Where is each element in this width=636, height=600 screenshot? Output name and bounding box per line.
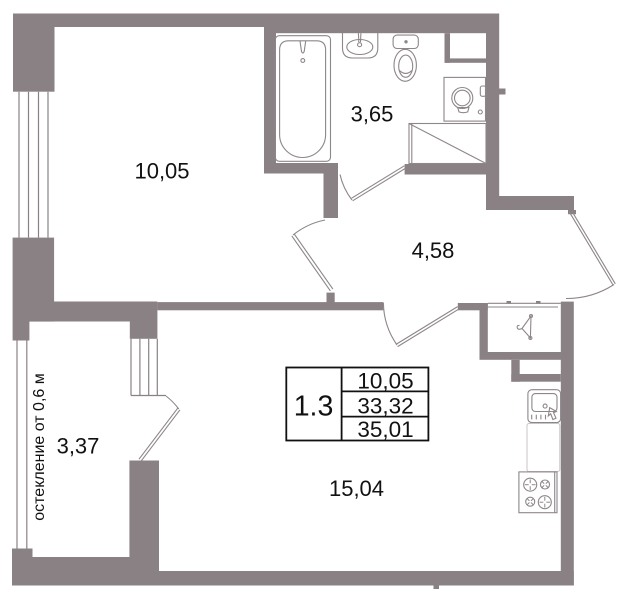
svg-text:10,05: 10,05: [134, 159, 189, 184]
svg-text:15,04: 15,04: [329, 476, 384, 501]
svg-text:35,01: 35,01: [357, 417, 413, 442]
svg-text:33,32: 33,32: [357, 394, 413, 419]
svg-text:3,65: 3,65: [351, 102, 394, 127]
svg-text:10,05: 10,05: [357, 369, 413, 394]
svg-text:1.3: 1.3: [294, 390, 334, 422]
svg-text:3,37: 3,37: [57, 434, 100, 459]
svg-text:4,58: 4,58: [412, 238, 455, 263]
svg-text:остекление от 0,6 м: остекление от 0,6 м: [31, 373, 48, 520]
